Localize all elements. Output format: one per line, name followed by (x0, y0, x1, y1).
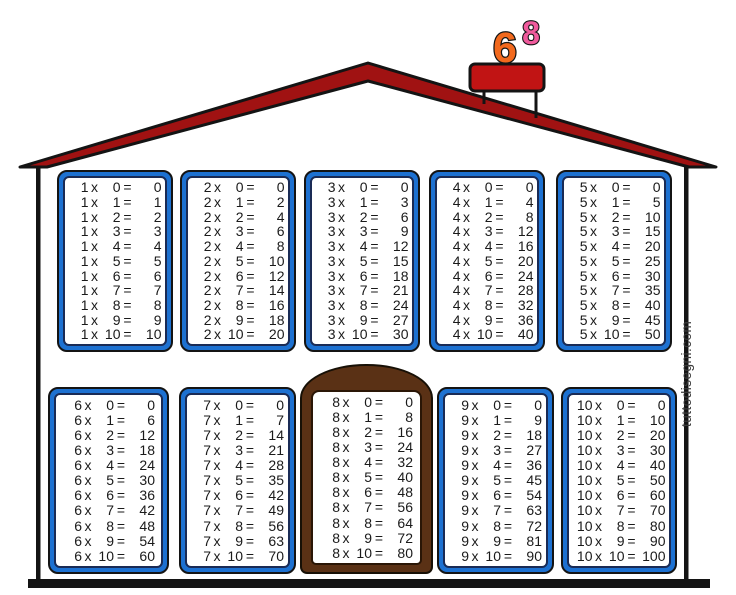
table-row: 2x6=12 (192, 269, 285, 283)
window-table-3: 3x0=03x1=33x2=63x3=93x4=123x5=153x6=183x… (304, 170, 420, 352)
table-row: 2x7=14 (192, 283, 285, 297)
table-row: 9x4=36 (449, 458, 542, 472)
table-row: 8x5=40 (320, 470, 413, 484)
table-row: 6x5=30 (62, 473, 155, 487)
table-row: 7x9=63 (191, 534, 284, 548)
table-row: 10x6=60 (573, 488, 666, 502)
table-row: 7x4=28 (191, 458, 284, 472)
table-row: 9x6=54 (449, 488, 542, 502)
table-row: 7x8=56 (191, 519, 284, 533)
table-row: 3x2=6 (316, 210, 409, 224)
table-row: 5x6=30 (568, 269, 661, 283)
table-row: 3x10=30 (316, 327, 409, 341)
table-row: 2x5=10 (192, 254, 285, 268)
table-row: 1x3=3 (69, 224, 162, 238)
table-row: 7x0=0 (191, 398, 284, 412)
multiplication-table-1: 1x0=01x1=11x2=21x3=31x4=41x5=51x6=61x7=7… (63, 176, 167, 346)
multiplication-table-9: 9x0=09x1=99x2=189x3=279x4=369x5=459x6=54… (443, 393, 548, 568)
table-row: 8x8=64 (320, 516, 413, 530)
table-row: 4x8=32 (441, 298, 534, 312)
table-row: 1x10=10 (69, 327, 162, 341)
table-row: 2x4=8 (192, 239, 285, 253)
table-row: 1x2=2 (69, 210, 162, 224)
multiplication-table-6: 6x0=06x1=66x2=126x3=186x4=246x5=306x6=36… (54, 393, 163, 568)
table-row: 1x4=4 (69, 239, 162, 253)
table-row: 10x2=20 (573, 428, 666, 442)
table-row: 5x5=25 (568, 254, 661, 268)
table-row: 2x3=6 (192, 224, 285, 238)
table-row: 8x0=0 (320, 395, 413, 409)
table-row: 5x3=15 (568, 224, 661, 238)
table-row: 3x5=15 (316, 254, 409, 268)
table-row: 6x8=48 (62, 519, 155, 533)
table-row: 10x10=100 (573, 549, 666, 563)
table-row: 3x1=3 (316, 195, 409, 209)
table-row: 9x5=45 (449, 473, 542, 487)
table-row: 2x1=2 (192, 195, 285, 209)
table-row: 2x2=4 (192, 210, 285, 224)
multiplication-table-7: 7x0=07x1=77x2=147x3=217x4=287x5=357x6=42… (185, 393, 290, 568)
table-row: 10x3=30 (573, 443, 666, 457)
table-row: 4x7=28 (441, 283, 534, 297)
table-row: 6x9=54 (62, 534, 155, 548)
table-row: 8x7=56 (320, 500, 413, 514)
table-row: 3x6=18 (316, 269, 409, 283)
table-row: 2x0=0 (192, 180, 285, 194)
table-row: 1x1=1 (69, 195, 162, 209)
table-row: 8x4=32 (320, 455, 413, 469)
table-row: 6x10=60 (62, 549, 155, 563)
table-row: 9x1=9 (449, 413, 542, 427)
table-row: 1x7=7 (69, 283, 162, 297)
house-multiplication-poster: 6 8 tuttodisegni.com 1x0=01x1=11x2=21x3=… (0, 0, 736, 595)
table-row: 4x9=36 (441, 313, 534, 327)
table-row: 3x8=24 (316, 298, 409, 312)
multiplication-table-10: 10x0=010x1=1010x2=2010x3=3010x4=4010x5=5… (567, 393, 671, 568)
table-row: 8x10=80 (320, 546, 413, 560)
table-row: 3x4=12 (316, 239, 409, 253)
table-row: 5x2=10 (568, 210, 661, 224)
table-row: 5x7=35 (568, 283, 661, 297)
table-row: 9x7=63 (449, 503, 542, 517)
table-row: 7x7=49 (191, 503, 284, 517)
table-row: 8x1=8 (320, 410, 413, 424)
watermark-text: tuttodisegni.com (679, 321, 694, 427)
table-row: 4x6=24 (441, 269, 534, 283)
table-row: 10x5=50 (573, 473, 666, 487)
table-row: 8x3=24 (320, 440, 413, 454)
window-table-6: 6x0=06x1=66x2=126x3=186x4=246x5=306x6=36… (48, 387, 169, 574)
table-row: 9x10=90 (449, 549, 542, 563)
door-table-8: 8x0=08x1=88x2=168x3=248x4=328x5=408x6=48… (300, 364, 433, 574)
table-row: 6x0=0 (62, 398, 155, 412)
table-row: 5x4=20 (568, 239, 661, 253)
table-row: 10x0=0 (573, 398, 666, 412)
table-row: 3x0=0 (316, 180, 409, 194)
table-row: 5x1=5 (568, 195, 661, 209)
multiplication-table-2: 2x0=02x1=22x2=42x3=62x4=82x5=102x6=122x7… (186, 176, 290, 346)
chimney-number-8: 8 (522, 15, 540, 51)
table-row: 8x6=48 (320, 485, 413, 499)
table-row: 6x2=12 (62, 428, 155, 442)
table-row: 7x3=21 (191, 443, 284, 457)
window-table-5: 5x0=05x1=55x2=105x3=155x4=205x5=255x6=30… (556, 170, 672, 352)
multiplication-table-8: 8x0=08x1=88x2=168x3=248x4=328x5=408x6=48… (311, 390, 422, 565)
table-row: 2x9=18 (192, 313, 285, 327)
table-row: 1x0=0 (69, 180, 162, 194)
window-table-4: 4x0=04x1=44x2=84x3=124x4=164x5=204x6=244… (429, 170, 545, 352)
table-row: 6x7=42 (62, 503, 155, 517)
table-row: 7x2=14 (191, 428, 284, 442)
chimney-number-6: 6 (493, 24, 517, 72)
table-row: 5x8=40 (568, 298, 661, 312)
window-table-7: 7x0=07x1=77x2=147x3=217x4=287x5=357x6=42… (179, 387, 296, 574)
table-row: 5x0=0 (568, 180, 661, 194)
table-row: 10x9=90 (573, 534, 666, 548)
table-row: 7x1=7 (191, 413, 284, 427)
table-row: 6x3=18 (62, 443, 155, 457)
table-row: 1x5=5 (69, 254, 162, 268)
table-row: 7x5=35 (191, 473, 284, 487)
table-row: 9x2=18 (449, 428, 542, 442)
table-row: 1x8=8 (69, 298, 162, 312)
roof (20, 63, 716, 167)
table-row: 6x6=36 (62, 488, 155, 502)
multiplication-table-5: 5x0=05x1=55x2=105x3=155x4=205x5=255x6=30… (562, 176, 666, 346)
table-row: 2x8=16 (192, 298, 285, 312)
table-row: 6x4=24 (62, 458, 155, 472)
table-row: 7x6=42 (191, 488, 284, 502)
table-row: 9x3=27 (449, 443, 542, 457)
table-row: 10x7=70 (573, 503, 666, 517)
table-row: 3x3=9 (316, 224, 409, 238)
multiplication-table-4: 4x0=04x1=44x2=84x3=124x4=164x5=204x6=244… (435, 176, 539, 346)
table-row: 4x3=12 (441, 224, 534, 238)
left-wall (36, 163, 41, 584)
table-row: 9x0=0 (449, 398, 542, 412)
table-row: 6x1=6 (62, 413, 155, 427)
window-table-2: 2x0=02x1=22x2=42x3=62x4=82x5=102x6=122x7… (180, 170, 296, 352)
table-row: 4x2=8 (441, 210, 534, 224)
window-table-9: 9x0=09x1=99x2=189x3=279x4=369x5=459x6=54… (437, 387, 554, 574)
table-row: 5x9=45 (568, 313, 661, 327)
table-row: 10x4=40 (573, 458, 666, 472)
table-row: 10x1=10 (573, 413, 666, 427)
window-table-1: 1x0=01x1=11x2=21x3=31x4=41x5=51x6=61x7=7… (57, 170, 173, 352)
table-row: 4x10=40 (441, 327, 534, 341)
table-row: 9x8=72 (449, 519, 542, 533)
table-row: 4x1=4 (441, 195, 534, 209)
multiplication-table-3: 3x0=03x1=33x2=63x3=93x4=123x5=153x6=183x… (310, 176, 414, 346)
table-row: 3x9=27 (316, 313, 409, 327)
table-row: 8x9=72 (320, 531, 413, 545)
table-row: 8x2=16 (320, 425, 413, 439)
table-row: 7x10=70 (191, 549, 284, 563)
table-row: 1x6=6 (69, 269, 162, 283)
window-table-10: 10x0=010x1=1010x2=2010x3=3010x4=4010x5=5… (561, 387, 677, 574)
table-row: 4x4=16 (441, 239, 534, 253)
table-row: 2x10=20 (192, 327, 285, 341)
base-line (28, 579, 710, 588)
table-row: 4x5=20 (441, 254, 534, 268)
table-row: 9x9=81 (449, 534, 542, 548)
table-row: 4x0=0 (441, 180, 534, 194)
table-row: 3x7=21 (316, 283, 409, 297)
table-row: 5x10=50 (568, 327, 661, 341)
table-row: 1x9=9 (69, 313, 162, 327)
table-row: 10x8=80 (573, 519, 666, 533)
